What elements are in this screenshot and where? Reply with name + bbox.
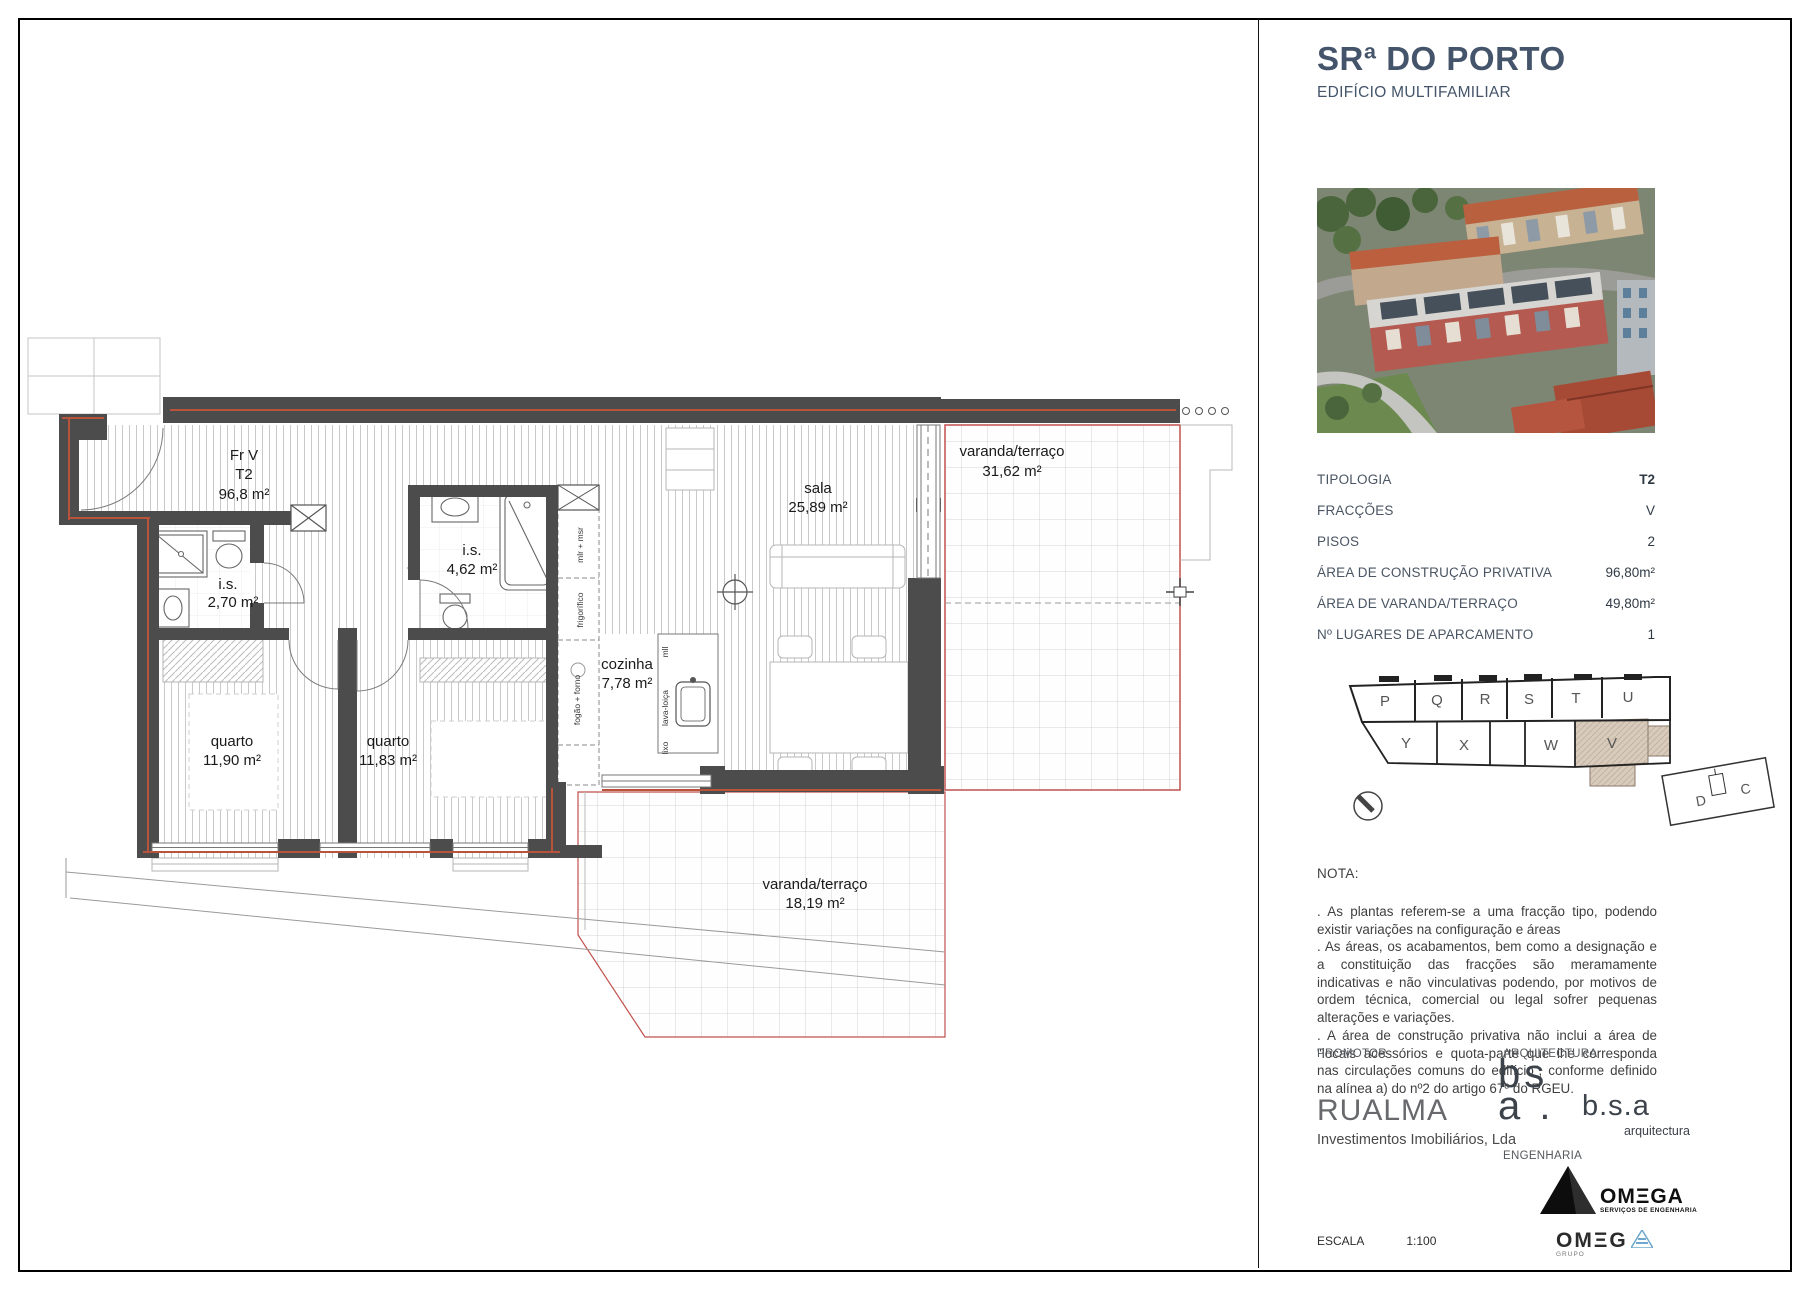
spec-row-area-privativa: ÁREA DE CONSTRUÇÃO PRIVATIVA 96,80m² [1317,557,1655,588]
svg-text:fogão + forno: fogão + forno [572,675,582,726]
promotor-name: RUALMA [1317,1094,1448,1128]
nota-heading: NOTA: [1317,866,1657,881]
svg-text:Q: Q [1431,692,1443,709]
svg-text:18,19 m²: 18,19 m² [785,895,844,912]
unit-label: Fr V [230,447,258,464]
spec-row-pisos: PISOS 2 [1317,526,1655,557]
svg-text:V: V [1607,735,1617,752]
bsa-tagline: arquitectura [1582,1124,1690,1138]
room-label-sala: sala [804,480,832,497]
svg-text:lixo: lixo [660,741,670,754]
panel-divider-line [1258,18,1259,1268]
page-title: SRª DO PORTO [1317,40,1677,78]
neighbour-outline [28,338,160,414]
room-label-quarto1: quarto [211,733,254,750]
nota-paragraph-2: . As áreas, os acabamentos, bem como a d… [1317,938,1657,1026]
svg-text:mll: mll [660,646,670,657]
svg-text:T: T [1571,690,1580,707]
engenharia-label: ENGENHARIA [1503,1150,1582,1162]
scale-value: 1:100 [1406,1234,1436,1248]
svg-text:W: W [1544,737,1559,754]
nota-block: NOTA: . As plantas referem-se a uma frac… [1317,866,1657,1098]
spec-table: TIPOLOGIA T2 FRACÇÕES V PISOS 2 ÁREA DE … [1317,464,1655,650]
svg-text:T2: T2 [235,466,253,483]
svg-text:lava-loiça: lava-loiça [660,690,670,726]
aerial-photo [1317,188,1655,433]
floor-plan: Fr V T2 96,8 m² i.s. 2,70 m² i.s. 4,62 m… [24,330,1234,1050]
page-subtitle: EDIFÍCIO MULTIFAMILIAR [1317,84,1677,102]
omega-grupo-logo: OMΞG GRUPO [1556,1230,1653,1258]
spec-value: 2 [1647,534,1655,549]
promotor-subtitle: Investimentos Imobiliários, Lda [1317,1132,1516,1148]
spec-value: T2 [1639,472,1655,487]
svg-text:Y: Y [1401,735,1411,752]
spec-row-area-varanda: ÁREA DE VARANDA/TERRAÇO 49,80m² [1317,588,1655,619]
key-plan: P Q R S T U Y X W V D C [1340,664,1788,836]
spec-row-fraccoes: FRACÇÕES V [1317,495,1655,526]
promotor-label: PROMOTOR [1317,1048,1387,1060]
party-wall-dots [1183,408,1235,415]
svg-text:mlr + msr: mlr + msr [575,527,585,563]
aerial-gray-building [1617,280,1655,375]
room-label-is462: i.s. [462,542,481,559]
svg-text:25,89 m²: 25,89 m² [788,499,847,516]
svg-text:7,78 m²: 7,78 m² [602,675,653,692]
scale-label: ESCALA [1317,1234,1364,1248]
room-label-quarto2: quarto [367,733,410,750]
omega-pyramid-icon [1540,1166,1596,1214]
room-label-terrace31: varanda/terraço [959,443,1064,460]
svg-text:11,90 m²: 11,90 m² [203,752,261,769]
svg-text:96,8 m²: 96,8 m² [219,486,270,503]
svg-text:frigorífico: frigorífico [575,592,585,627]
room-label-is270: i.s. [218,576,237,593]
svg-text:U: U [1623,689,1634,706]
bsa-wordmark: b.s.a [1582,1090,1650,1123]
omega-logo: OMΞGA SERVIÇOS DE ENGENHARIA [1540,1166,1697,1214]
svg-text:P: P [1380,693,1390,710]
spec-row-aparcamento: Nº LUGARES DE APARCAMENTO 1 [1317,619,1655,650]
bsa-logo: bs a . [1498,1058,1554,1122]
svg-text:X: X [1459,737,1469,754]
spec-value: 96,80m² [1605,565,1655,580]
north-compass-icon [1354,792,1382,820]
shaft-box [291,505,326,531]
key-plan-highlight-V [1575,719,1670,786]
omega-grupo-triangle-icon [1631,1230,1653,1248]
room-label-terrace18: varanda/terraço [762,876,867,893]
svg-text:R: R [1480,691,1491,708]
svg-text:31,62 m²: 31,62 m² [982,463,1041,480]
room-label-cozinha: cozinha [601,656,653,673]
drawing-sheet: { "colors": { "title_accent": "#44546A",… [0,0,1813,1299]
svg-text:S: S [1524,691,1534,708]
spec-value: V [1646,503,1655,518]
nota-paragraph-3: . A área de construção privativa não inc… [1317,1027,1657,1098]
svg-text:4,62 m²: 4,62 m² [447,561,498,578]
nota-paragraph-1: . As plantas referem-se a uma fracção ti… [1317,903,1657,938]
spec-value: 1 [1647,627,1655,642]
svg-text:2,70 m²: 2,70 m² [208,594,259,611]
spec-row-tipologia: TIPOLOGIA T2 [1317,464,1655,495]
terrace-18 [578,792,945,1037]
scale-block: ESCALA 1:100 [1317,1234,1436,1248]
spec-value: 49,80m² [1605,596,1655,611]
key-plan-annex: D C [1662,758,1774,825]
svg-text:11,83 m²: 11,83 m² [359,752,417,769]
